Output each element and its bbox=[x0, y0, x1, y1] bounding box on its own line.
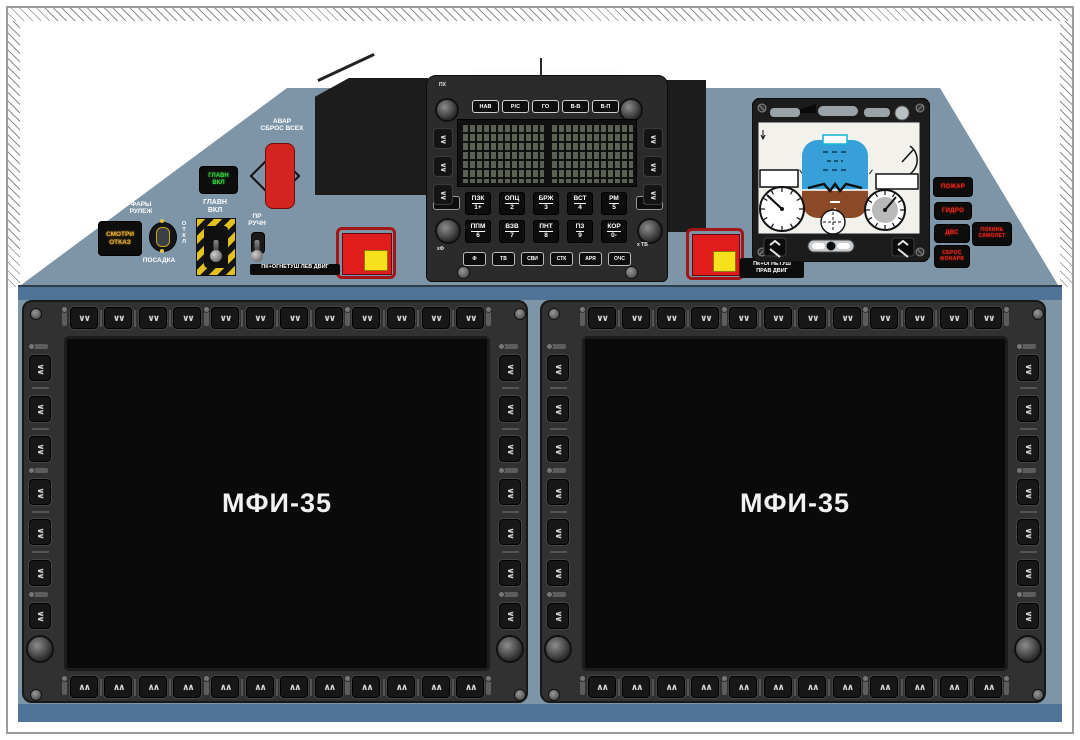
mfd-bezel-button[interactable]: ∨∨ bbox=[833, 307, 861, 329]
bezel-sep bbox=[502, 551, 519, 553]
mfd-bezel-button[interactable]: ∨∨ bbox=[1017, 519, 1039, 545]
bezel-peg bbox=[1004, 311, 1009, 326]
bezel-peg bbox=[33, 592, 48, 597]
key-ППМ[interactable]: ППМ6 bbox=[465, 220, 491, 243]
bezel-sep bbox=[759, 679, 761, 696]
mfd-bezel-button[interactable]: ∨∨ bbox=[1017, 479, 1039, 505]
mode-key-2[interactable]: Р/С bbox=[502, 100, 529, 113]
bezel-peg bbox=[503, 468, 518, 473]
matrix-side-key[interactable]: ∨∨ bbox=[433, 128, 453, 149]
mfd-bezel-button[interactable]: ∨∨ bbox=[547, 560, 569, 586]
bezel-sep bbox=[241, 679, 243, 696]
mfd-bezel-button[interactable]: ∨∨ bbox=[547, 479, 569, 505]
bezel-peg bbox=[345, 311, 350, 326]
mode-key-3[interactable]: ГО bbox=[532, 100, 559, 113]
bottom-band bbox=[18, 704, 1062, 722]
mfd-bezel-button[interactable]: ∨∨ bbox=[870, 307, 898, 329]
key-КОР[interactable]: КОР0- bbox=[601, 220, 627, 243]
mfd-corner-screw bbox=[1032, 308, 1044, 320]
key-ОПЦ[interactable]: ОПЦ2 bbox=[499, 192, 525, 215]
bezel-sep bbox=[383, 679, 385, 696]
key-ПЗК[interactable]: ПЗК1+ bbox=[465, 192, 491, 215]
mfd-bezel-button[interactable]: ∨∨ bbox=[729, 307, 757, 329]
warning-light-fire[interactable]: ПОЖАР bbox=[933, 177, 973, 197]
bezel-sep bbox=[828, 679, 830, 696]
mfd-bezel-button[interactable]: ∨∨ bbox=[315, 307, 343, 329]
standby-instrument-panel bbox=[752, 98, 930, 262]
mfd-bezel-button[interactable]: ∧∧ bbox=[940, 676, 968, 698]
mfd-bezel-button[interactable]: ∨∨ bbox=[764, 307, 792, 329]
mfd-bezel-button[interactable]: ∧∧ bbox=[173, 676, 201, 698]
mfd-bezel-button[interactable]: ∨∨ bbox=[29, 519, 51, 545]
bezel-sep bbox=[1020, 428, 1037, 430]
mode-key-4[interactable]: В-В bbox=[562, 100, 589, 113]
switch-dot bbox=[160, 249, 164, 253]
mfd-bezel-button[interactable]: ∨∨ bbox=[1017, 560, 1039, 586]
bezel-peg bbox=[580, 680, 585, 695]
mfd-bezel-button[interactable]: ∨∨ bbox=[622, 307, 650, 329]
mfd-bezel-col-right: ∨∨∨∨∨∨∨∨∨∨∨∨∨∨ bbox=[496, 338, 524, 669]
mfd-bezel-button[interactable]: ∨∨ bbox=[588, 307, 616, 329]
mfd-corner-screw bbox=[514, 689, 526, 701]
mfd-bezel-button[interactable]: ∨∨ bbox=[657, 307, 685, 329]
bezel-peg bbox=[580, 311, 585, 326]
bezel-peg bbox=[503, 344, 518, 349]
standby-button-1[interactable] bbox=[770, 108, 800, 117]
bezel-sep bbox=[32, 511, 49, 513]
bezel-peg bbox=[204, 680, 209, 695]
emergency-jettison-handle[interactable] bbox=[265, 143, 295, 209]
mfd-bezel-button[interactable]: ∨∨ bbox=[280, 307, 308, 329]
bezel-sep bbox=[502, 387, 519, 389]
mfd-left-screen: МФИ-35 bbox=[64, 336, 490, 671]
mfd-bezel-button[interactable]: ∨∨ bbox=[29, 479, 51, 505]
bezel-sep bbox=[502, 428, 519, 430]
bezel-peg bbox=[204, 311, 209, 326]
bezel-sep bbox=[550, 387, 567, 389]
mfd-bezel-row-bottom: ∧∧∧∧∧∧∧∧∧∧∧∧∧∧∧∧∧∧∧∧∧∧∧∧ bbox=[578, 674, 1012, 700]
bezel-peg bbox=[345, 680, 350, 695]
bezel-sep bbox=[550, 551, 567, 553]
mfd-brightness-knob[interactable] bbox=[544, 635, 572, 663]
mfd-bezel-row-top: ∨∨∨∨∨∨∨∨∨∨∨∨∨∨∨∨∨∨∨∨∨∨∨∨ bbox=[578, 305, 1012, 331]
bezel-sep bbox=[310, 310, 312, 327]
key-ВЗВ[interactable]: ВЗВ7 bbox=[499, 220, 525, 243]
compass-rose bbox=[821, 210, 845, 234]
mode-key-1[interactable]: НАВ bbox=[472, 100, 499, 113]
mfd-bezel-button[interactable]: ∨∨ bbox=[499, 519, 521, 545]
matrix-right-half bbox=[550, 123, 633, 183]
mfd-bezel-button[interactable]: ∧∧ bbox=[764, 676, 792, 698]
cockpit-panel-drawing: СМОТРИ ОТКАЗ ФАРЫ РУЛЕЖ ОТКЛ ПОСАДКА ГЛА… bbox=[0, 0, 1080, 740]
master-switch-label: ГЛАВН ВКЛ bbox=[190, 199, 240, 215]
mfd-brightness-knob[interactable] bbox=[496, 635, 524, 663]
mfd-bezel-button[interactable]: ∨∨ bbox=[173, 307, 201, 329]
mfd-bezel-button[interactable]: ∨∨ bbox=[499, 355, 521, 381]
lights-switch-label: ФАРЫ РУЛЕЖ bbox=[118, 201, 164, 216]
mfd-bezel-button[interactable]: ∨∨ bbox=[1017, 355, 1039, 381]
mfd-bezel-button[interactable]: ∨∨ bbox=[29, 355, 51, 381]
mfd-bezel-button[interactable]: ∧∧ bbox=[691, 676, 719, 698]
data-entry-keypad: ПХ СБР ВЫЦ хФ х ТВ НАВР/СГОВ-ВВ-П∨∨∨∨∨∨∨… bbox=[426, 75, 668, 282]
pr-ruchn-label: ПР РУЧН bbox=[238, 213, 276, 228]
bezel-peg bbox=[33, 468, 48, 473]
jettison-label: АВАР СБРОС ВСЕХ bbox=[246, 118, 318, 133]
hud-housing-left bbox=[315, 78, 428, 195]
mfd-bezel-button[interactable]: ∧∧ bbox=[280, 676, 308, 698]
key-ПЗ[interactable]: ПЗ9 bbox=[567, 220, 593, 243]
key-ТВ[interactable]: ТВ bbox=[492, 252, 515, 266]
matrix-side-key[interactable]: ∨∨ bbox=[433, 184, 453, 205]
standby-button-3[interactable] bbox=[864, 108, 890, 117]
warning-light-hydro[interactable]: ГИДРО bbox=[934, 202, 972, 220]
key-БРЖ[interactable]: БРЖ3 bbox=[533, 192, 559, 215]
mfd-right-screen: МФИ-35 bbox=[582, 336, 1008, 671]
bezel-sep bbox=[935, 310, 937, 327]
toggle-knob[interactable] bbox=[251, 250, 263, 262]
bezel-peg bbox=[62, 680, 67, 695]
speed-readout-box bbox=[760, 170, 798, 187]
master-caution-light[interactable]: СМОТРИ ОТКАЗ bbox=[98, 221, 142, 256]
keypad-screw bbox=[457, 266, 470, 279]
key-ОЧС[interactable]: ОЧС bbox=[608, 252, 631, 266]
bezel-sep bbox=[687, 310, 689, 327]
bezel-peg bbox=[503, 592, 518, 597]
mfd-bezel-button[interactable]: ∨∨ bbox=[499, 396, 521, 422]
mfd-bezel-button[interactable]: ∨∨ bbox=[139, 307, 167, 329]
mfd-corner-screw bbox=[30, 689, 42, 701]
matrix-side-key[interactable]: ∨∨ bbox=[643, 128, 663, 149]
mfd-bezel-button[interactable]: ∨∨ bbox=[691, 307, 719, 329]
keypad-knob-top-left[interactable] bbox=[435, 98, 459, 122]
fire-button-yellow-square bbox=[713, 251, 736, 272]
bezel-sep bbox=[759, 310, 761, 327]
mfd-bezel-button[interactable]: ∨∨ bbox=[387, 307, 415, 329]
warning-light-engine[interactable]: ДВС bbox=[934, 224, 970, 243]
bezel-sep bbox=[32, 551, 49, 553]
airspeed-dial bbox=[760, 187, 804, 231]
mfd-bezel-button[interactable]: ∧∧ bbox=[729, 676, 757, 698]
mfd-bezel-button[interactable]: ∧∧ bbox=[588, 676, 616, 698]
mfd-corner-screw bbox=[30, 308, 42, 320]
bezel-sep bbox=[100, 310, 102, 327]
mfd-bezel-button[interactable]: ∧∧ bbox=[104, 676, 132, 698]
bezel-peg bbox=[551, 468, 566, 473]
bezel-sep bbox=[687, 679, 689, 696]
panel-divider-band bbox=[18, 285, 1062, 300]
bezel-sep bbox=[550, 428, 567, 430]
mfd-left-title: МФИ-35 bbox=[222, 488, 332, 519]
mfd-bezel-button[interactable]: ∧∧ bbox=[387, 676, 415, 698]
bezel-peg bbox=[1021, 344, 1036, 349]
matrix-side-key[interactable]: ∨∨ bbox=[433, 156, 453, 177]
bezel-peg bbox=[1021, 592, 1036, 597]
mfd-bezel-button[interactable]: ∨∨ bbox=[29, 396, 51, 422]
mfd-bezel-button[interactable]: ∨∨ bbox=[499, 603, 521, 629]
keypad-corner-label: ПХ bbox=[439, 82, 446, 88]
mfd-bezel-button[interactable]: ∧∧ bbox=[246, 676, 274, 698]
mfd-right-title: МФИ-35 bbox=[740, 488, 850, 519]
key-СВИ[interactable]: СВИ bbox=[521, 252, 544, 266]
bezel-peg bbox=[722, 311, 727, 326]
bezel-sep bbox=[901, 679, 903, 696]
altimeter-dial bbox=[865, 190, 905, 230]
mfd-bezel-button[interactable]: ∨∨ bbox=[29, 560, 51, 586]
master-caution-line1: СМОТРИ bbox=[106, 231, 134, 238]
brightness-rocker-right[interactable] bbox=[892, 238, 914, 257]
mfd-bezel-button[interactable]: ∨∨ bbox=[246, 307, 274, 329]
mfd-bezel-button[interactable]: ∨∨ bbox=[547, 519, 569, 545]
pr-ruchn-toggle[interactable] bbox=[247, 232, 267, 264]
keypad-label-left: хФ bbox=[437, 246, 444, 252]
bezel-sep bbox=[452, 679, 454, 696]
bezel-sep bbox=[901, 310, 903, 327]
key-ПНТ[interactable]: ПНТ8 bbox=[533, 220, 559, 243]
bezel-sep bbox=[550, 511, 567, 513]
lights-off-label: ОТКЛ bbox=[176, 221, 186, 261]
mfd-bezel-button[interactable]: ∨∨ bbox=[422, 307, 450, 329]
bezel-sep bbox=[618, 679, 620, 696]
bezel-sep bbox=[134, 310, 136, 327]
standby-knob-top[interactable] bbox=[895, 106, 909, 120]
mfd-bezel-button[interactable]: ∧∧ bbox=[870, 676, 898, 698]
bezel-sep bbox=[417, 310, 419, 327]
mfd-bezel-button[interactable]: ∨∨ bbox=[29, 603, 51, 629]
bezel-peg bbox=[486, 311, 491, 326]
bezel-sep bbox=[935, 679, 937, 696]
mfd-right: МФИ-35 ∨∨∨∨∨∨∨∨∨∨∨∨∨∨∨∨∨∨∨∨∨∨∨∨∧∧∧∧∧∧∧∧∧… bbox=[540, 300, 1046, 703]
key-РМ[interactable]: РМ5 bbox=[601, 192, 627, 215]
mfd-bezel-col-left: ∨∨∨∨∨∨∨∨∨∨∨∨∨∨ bbox=[26, 338, 54, 669]
landing-lights-switch[interactable] bbox=[147, 219, 177, 255]
mfd-bezel-button[interactable]: ∨∨ bbox=[940, 307, 968, 329]
bezel-sep bbox=[794, 310, 796, 327]
mfd-bezel-button[interactable]: ∨∨ bbox=[211, 307, 239, 329]
mfd-corner-screw bbox=[514, 308, 526, 320]
bezel-sep bbox=[828, 310, 830, 327]
matrix-side-key[interactable]: ∨∨ bbox=[643, 156, 663, 177]
mfd-bezel-button[interactable]: ∨∨ bbox=[1017, 436, 1039, 462]
bezel-sep bbox=[652, 310, 654, 327]
master-caution-line2: ОТКАЗ bbox=[109, 239, 131, 246]
mfd-bezel-button[interactable]: ∧∧ bbox=[657, 676, 685, 698]
mfd-bezel-button[interactable]: ∨∨ bbox=[499, 479, 521, 505]
master-power-switch[interactable] bbox=[196, 218, 236, 276]
warning-light-canopy[interactable]: СБРОСФОНАРЯ bbox=[934, 245, 970, 268]
switch-dot bbox=[160, 219, 164, 223]
mfd-bezel-button[interactable]: ∧∧ bbox=[456, 676, 484, 698]
mfd-bezel-button[interactable]: ∧∧ bbox=[211, 676, 239, 698]
bezel-peg bbox=[551, 592, 566, 597]
bezel-sep bbox=[276, 679, 278, 696]
bezel-sep bbox=[100, 679, 102, 696]
mfd-bezel-button[interactable]: ∧∧ bbox=[622, 676, 650, 698]
mfd-brightness-knob[interactable] bbox=[1014, 635, 1042, 663]
bezel-sep bbox=[383, 310, 385, 327]
fire-button-yellow-square bbox=[364, 250, 388, 271]
bezel-sep bbox=[502, 511, 519, 513]
attitude-indicator bbox=[802, 135, 868, 218]
mfd-bezel-col-left: ∨∨∨∨∨∨∨∨∨∨∨∨∨∨ bbox=[544, 338, 572, 669]
matrix-side-key[interactable]: ∨∨ bbox=[643, 184, 663, 205]
switch-knob[interactable] bbox=[156, 227, 170, 247]
bezel-sep bbox=[794, 679, 796, 696]
bezel-peg bbox=[62, 311, 67, 326]
bezel-peg bbox=[551, 344, 566, 349]
brightness-rocker-left[interactable] bbox=[764, 238, 786, 257]
bezel-peg bbox=[1021, 468, 1036, 473]
mfd-bezel-button[interactable]: ∨∨ bbox=[29, 436, 51, 462]
mfd-bezel-button[interactable]: ∧∧ bbox=[70, 676, 98, 698]
mfd-bezel-button[interactable]: ∧∧ bbox=[905, 676, 933, 698]
mfd-bezel-button[interactable]: ∧∧ bbox=[315, 676, 343, 698]
lights-landing-label: ПОСАДКА bbox=[130, 257, 188, 264]
keypad-knob-bottom-right[interactable] bbox=[637, 218, 663, 244]
mfd-bezel-button[interactable]: ∨∨ bbox=[1017, 396, 1039, 422]
bezel-peg bbox=[863, 680, 868, 695]
mode-key-5[interactable]: В-П bbox=[592, 100, 619, 113]
bezel-sep bbox=[1020, 551, 1037, 553]
fire-button-face[interactable] bbox=[692, 234, 740, 276]
warning-light-eject[interactable]: ПОКИНЬСАМОЛЕТ bbox=[972, 222, 1012, 246]
mfd-bezel-button[interactable]: ∨∨ bbox=[70, 307, 98, 329]
fire-extinguisher-left-button[interactable] bbox=[336, 227, 396, 279]
keypad-knob-bottom-left[interactable] bbox=[435, 218, 461, 244]
mfd-bezel-button[interactable]: ∨∨ bbox=[547, 355, 569, 381]
key-Ф[interactable]: Ф bbox=[463, 252, 486, 266]
bezel-peg bbox=[863, 311, 868, 326]
bezel-sep bbox=[310, 679, 312, 696]
bezel-sep bbox=[32, 428, 49, 430]
mfd-bezel-button[interactable]: ∨∨ bbox=[547, 436, 569, 462]
mfd-bezel-button[interactable]: ∨∨ bbox=[1017, 603, 1039, 629]
key-СТК[interactable]: СТК bbox=[550, 252, 573, 266]
mfd-bezel-row-top: ∨∨∨∨∨∨∨∨∨∨∨∨∨∨∨∨∨∨∨∨∨∨∨∨ bbox=[60, 305, 494, 331]
mfd-bezel-button[interactable]: ∨∨ bbox=[798, 307, 826, 329]
mfd-corner-screw bbox=[548, 308, 560, 320]
bezel-sep bbox=[169, 679, 171, 696]
bezel-peg bbox=[33, 344, 48, 349]
bezel-sep bbox=[1020, 387, 1037, 389]
standby-button-2[interactable] bbox=[818, 106, 858, 116]
bezel-sep bbox=[970, 679, 972, 696]
switch-well bbox=[204, 226, 228, 268]
fire-extinguisher-right-button[interactable] bbox=[686, 228, 744, 280]
mfd-bezel-button[interactable]: ∨∨ bbox=[905, 307, 933, 329]
center-adjust-switch[interactable] bbox=[808, 240, 854, 252]
mfd-corner-screw bbox=[1032, 689, 1044, 701]
bezel-sep bbox=[241, 310, 243, 327]
keypad-screw bbox=[625, 266, 638, 279]
mfd-brightness-knob[interactable] bbox=[26, 635, 54, 663]
mfd-bezel-button[interactable]: ∧∧ bbox=[798, 676, 826, 698]
bezel-sep bbox=[618, 310, 620, 327]
bezel-sep bbox=[276, 310, 278, 327]
mfd-bezel-col-right: ∨∨∨∨∨∨∨∨∨∨∨∨∨∨ bbox=[1014, 338, 1042, 669]
toggle-knob[interactable] bbox=[210, 250, 222, 262]
mfd-bezel-row-bottom: ∧∧∧∧∧∧∧∧∧∧∧∧∧∧∧∧∧∧∧∧∧∧∧∧ bbox=[60, 674, 494, 700]
bezel-sep bbox=[970, 310, 972, 327]
bezel-peg bbox=[722, 680, 727, 695]
matrix-left-half bbox=[461, 123, 544, 183]
mfd-bezel-button[interactable]: ∨∨ bbox=[456, 307, 484, 329]
bezel-sep bbox=[417, 679, 419, 696]
mfd-bezel-button[interactable]: ∧∧ bbox=[833, 676, 861, 698]
bezel-sep bbox=[134, 679, 136, 696]
bezel-sep bbox=[169, 310, 171, 327]
mfd-bezel-button[interactable]: ∨∨ bbox=[104, 307, 132, 329]
mfd-corner-screw bbox=[548, 689, 560, 701]
mfd-bezel-button[interactable]: ∨∨ bbox=[547, 396, 569, 422]
dot-matrix-display bbox=[457, 119, 637, 187]
bezel-peg bbox=[1004, 680, 1009, 695]
mfd-bezel-button[interactable]: ∧∧ bbox=[422, 676, 450, 698]
fire-left-label: ПК+ОГНЕТУШ ЛЕВ ДВИГ bbox=[250, 264, 340, 275]
mfd-bezel-button[interactable]: ∨∨ bbox=[974, 307, 1002, 329]
bezel-sep bbox=[1020, 511, 1037, 513]
mfd-bezel-button[interactable]: ∨∨ bbox=[499, 560, 521, 586]
altitude-readout-box bbox=[876, 174, 918, 189]
bezel-peg bbox=[486, 680, 491, 695]
mfd-bezel-button[interactable]: ∨∨ bbox=[499, 436, 521, 462]
mfd-bezel-button[interactable]: ∧∧ bbox=[139, 676, 167, 698]
mfd-bezel-button[interactable]: ∨∨ bbox=[547, 603, 569, 629]
bezel-sep bbox=[32, 387, 49, 389]
fire-button-face[interactable] bbox=[342, 233, 392, 275]
bezel-sep bbox=[452, 310, 454, 327]
key-АРЯ[interactable]: АРЯ bbox=[579, 252, 602, 266]
mfd-bezel-button[interactable]: ∧∧ bbox=[974, 676, 1002, 698]
master-on-light[interactable]: ГЛАВН ВКЛ bbox=[199, 166, 238, 194]
key-ВСТ[interactable]: ВСТ4 bbox=[567, 192, 593, 215]
bezel-sep bbox=[652, 679, 654, 696]
keypad-label-right: х ТВ bbox=[637, 242, 648, 248]
mfd-bezel-button[interactable]: ∨∨ bbox=[352, 307, 380, 329]
mfd-bezel-button[interactable]: ∧∧ bbox=[352, 676, 380, 698]
mfd-left: МФИ-35 ∨∨∨∨∨∨∨∨∨∨∨∨∨∨∨∨∨∨∨∨∨∨∨∨∧∧∧∧∧∧∧∧∧… bbox=[22, 300, 528, 703]
